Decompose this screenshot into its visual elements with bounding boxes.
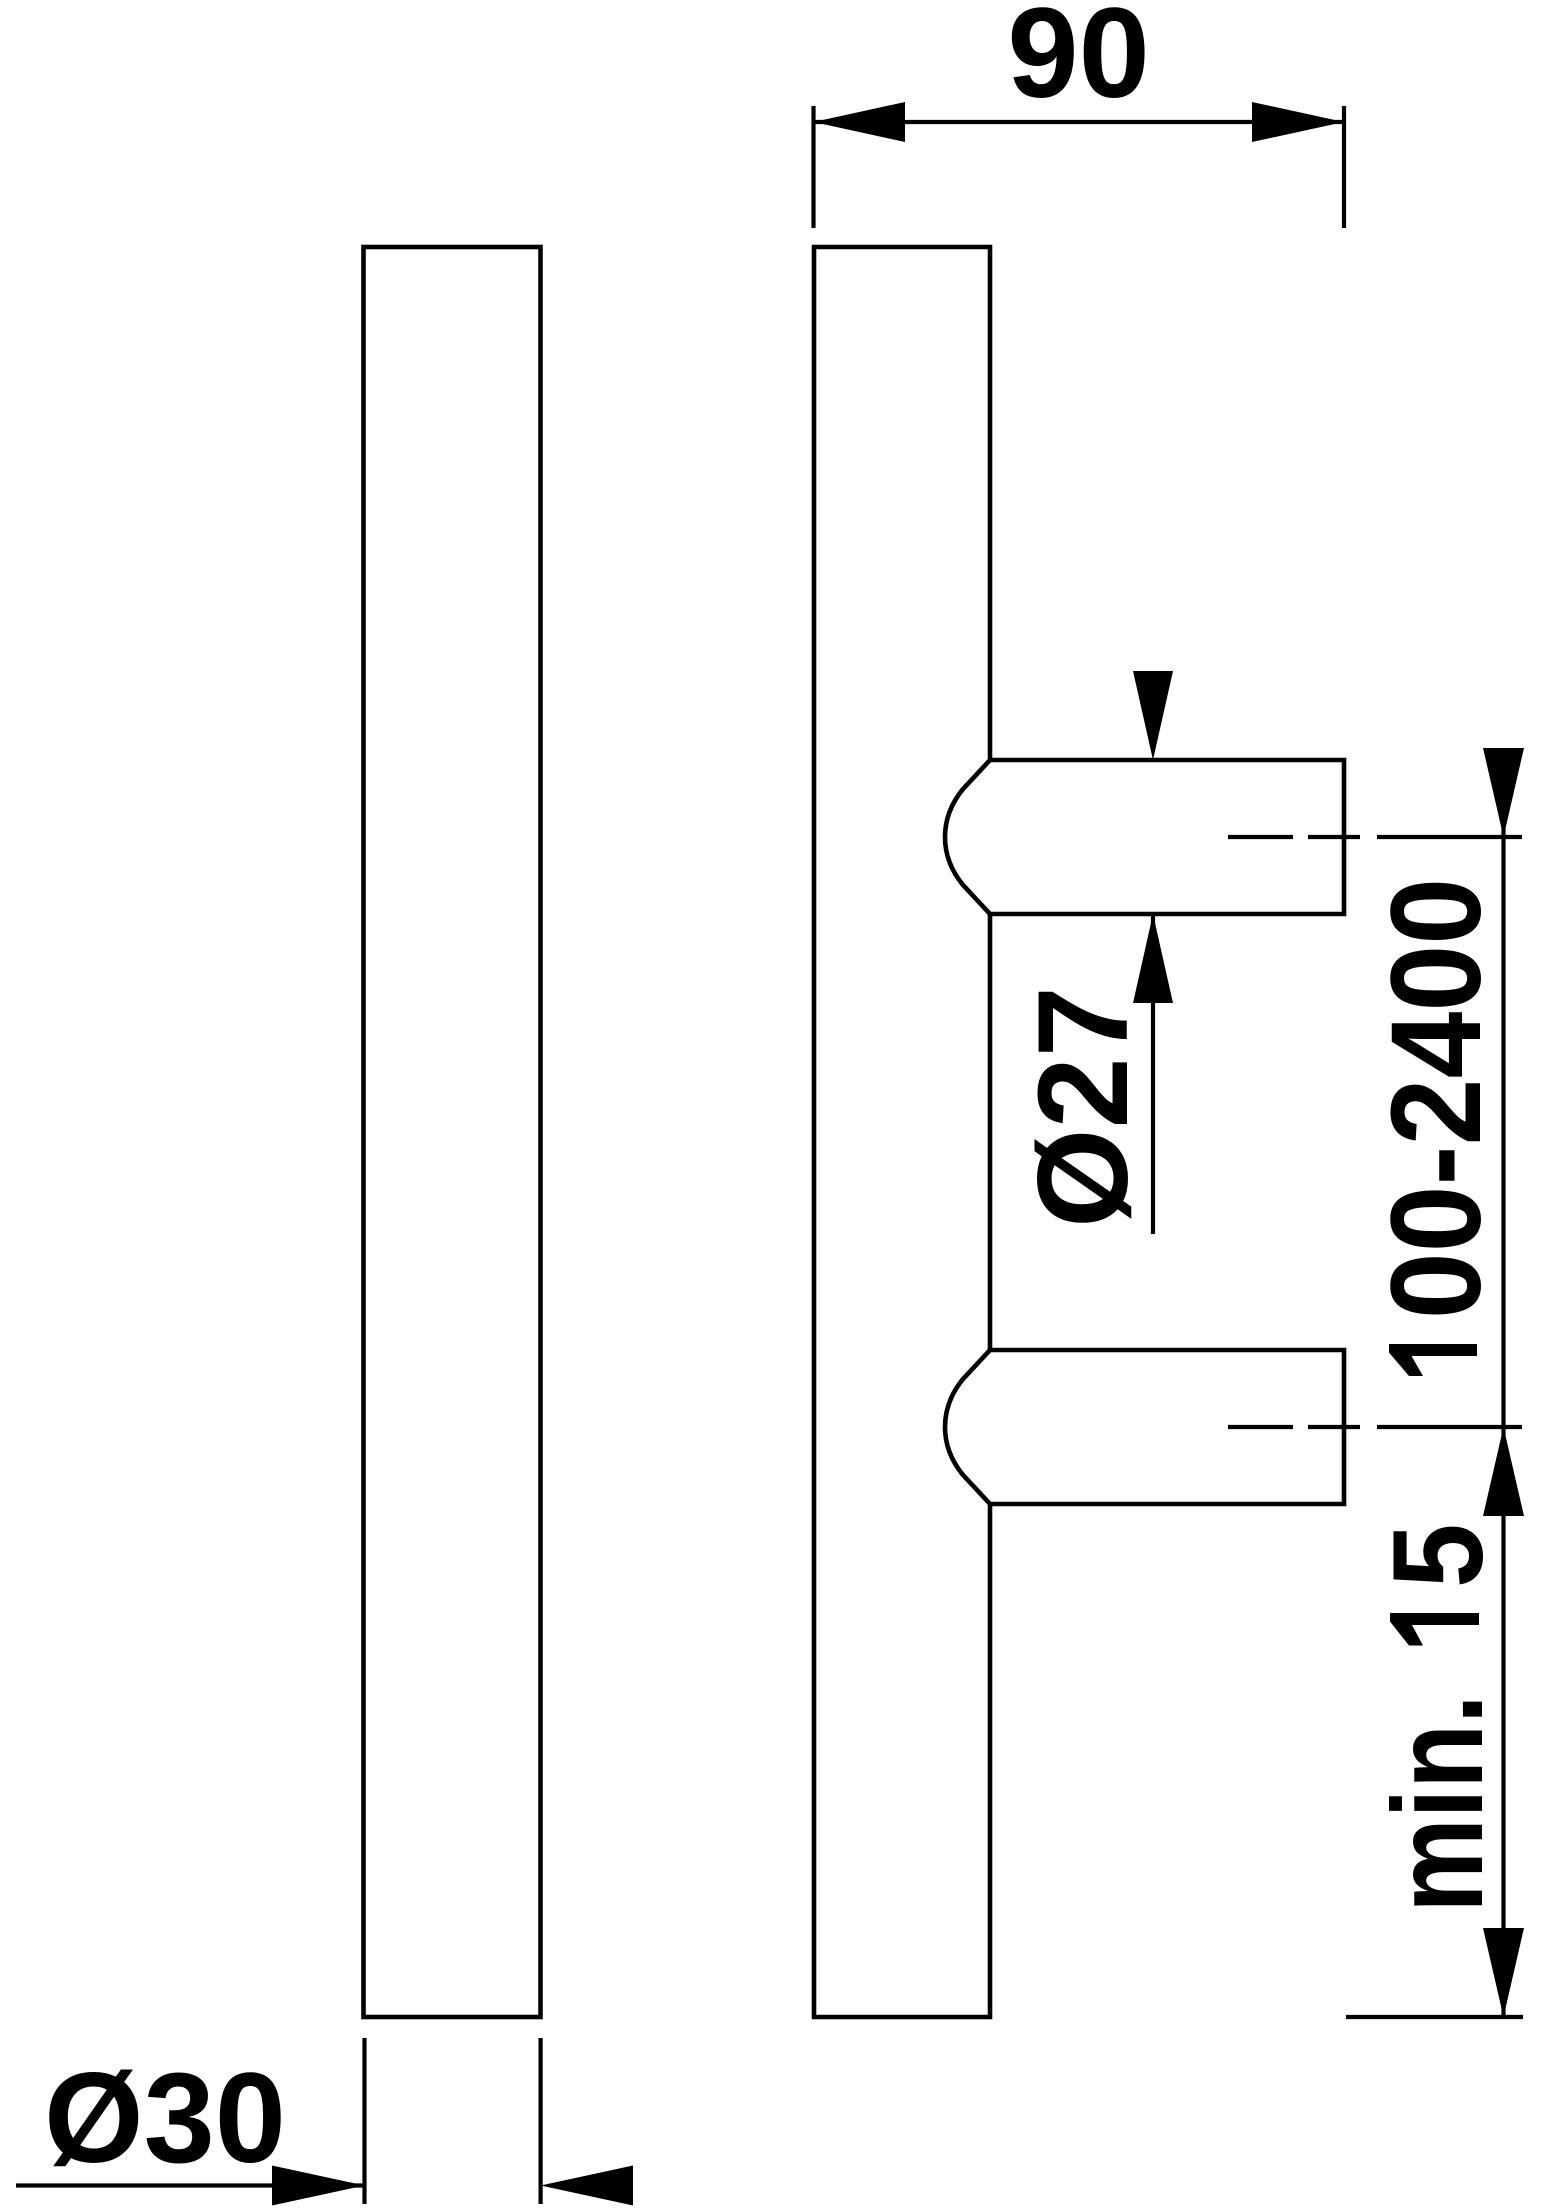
svg-text:90: 90	[1007, 0, 1149, 125]
svg-text:Ø27: Ø27	[1012, 986, 1155, 1228]
svg-text:Ø30: Ø30	[44, 2047, 286, 2190]
svg-text:00-2400: 00-2400	[1366, 878, 1508, 1320]
svg-text:5: 5	[1366, 1523, 1510, 1588]
svg-text:min.: min.	[1367, 1694, 1510, 1912]
